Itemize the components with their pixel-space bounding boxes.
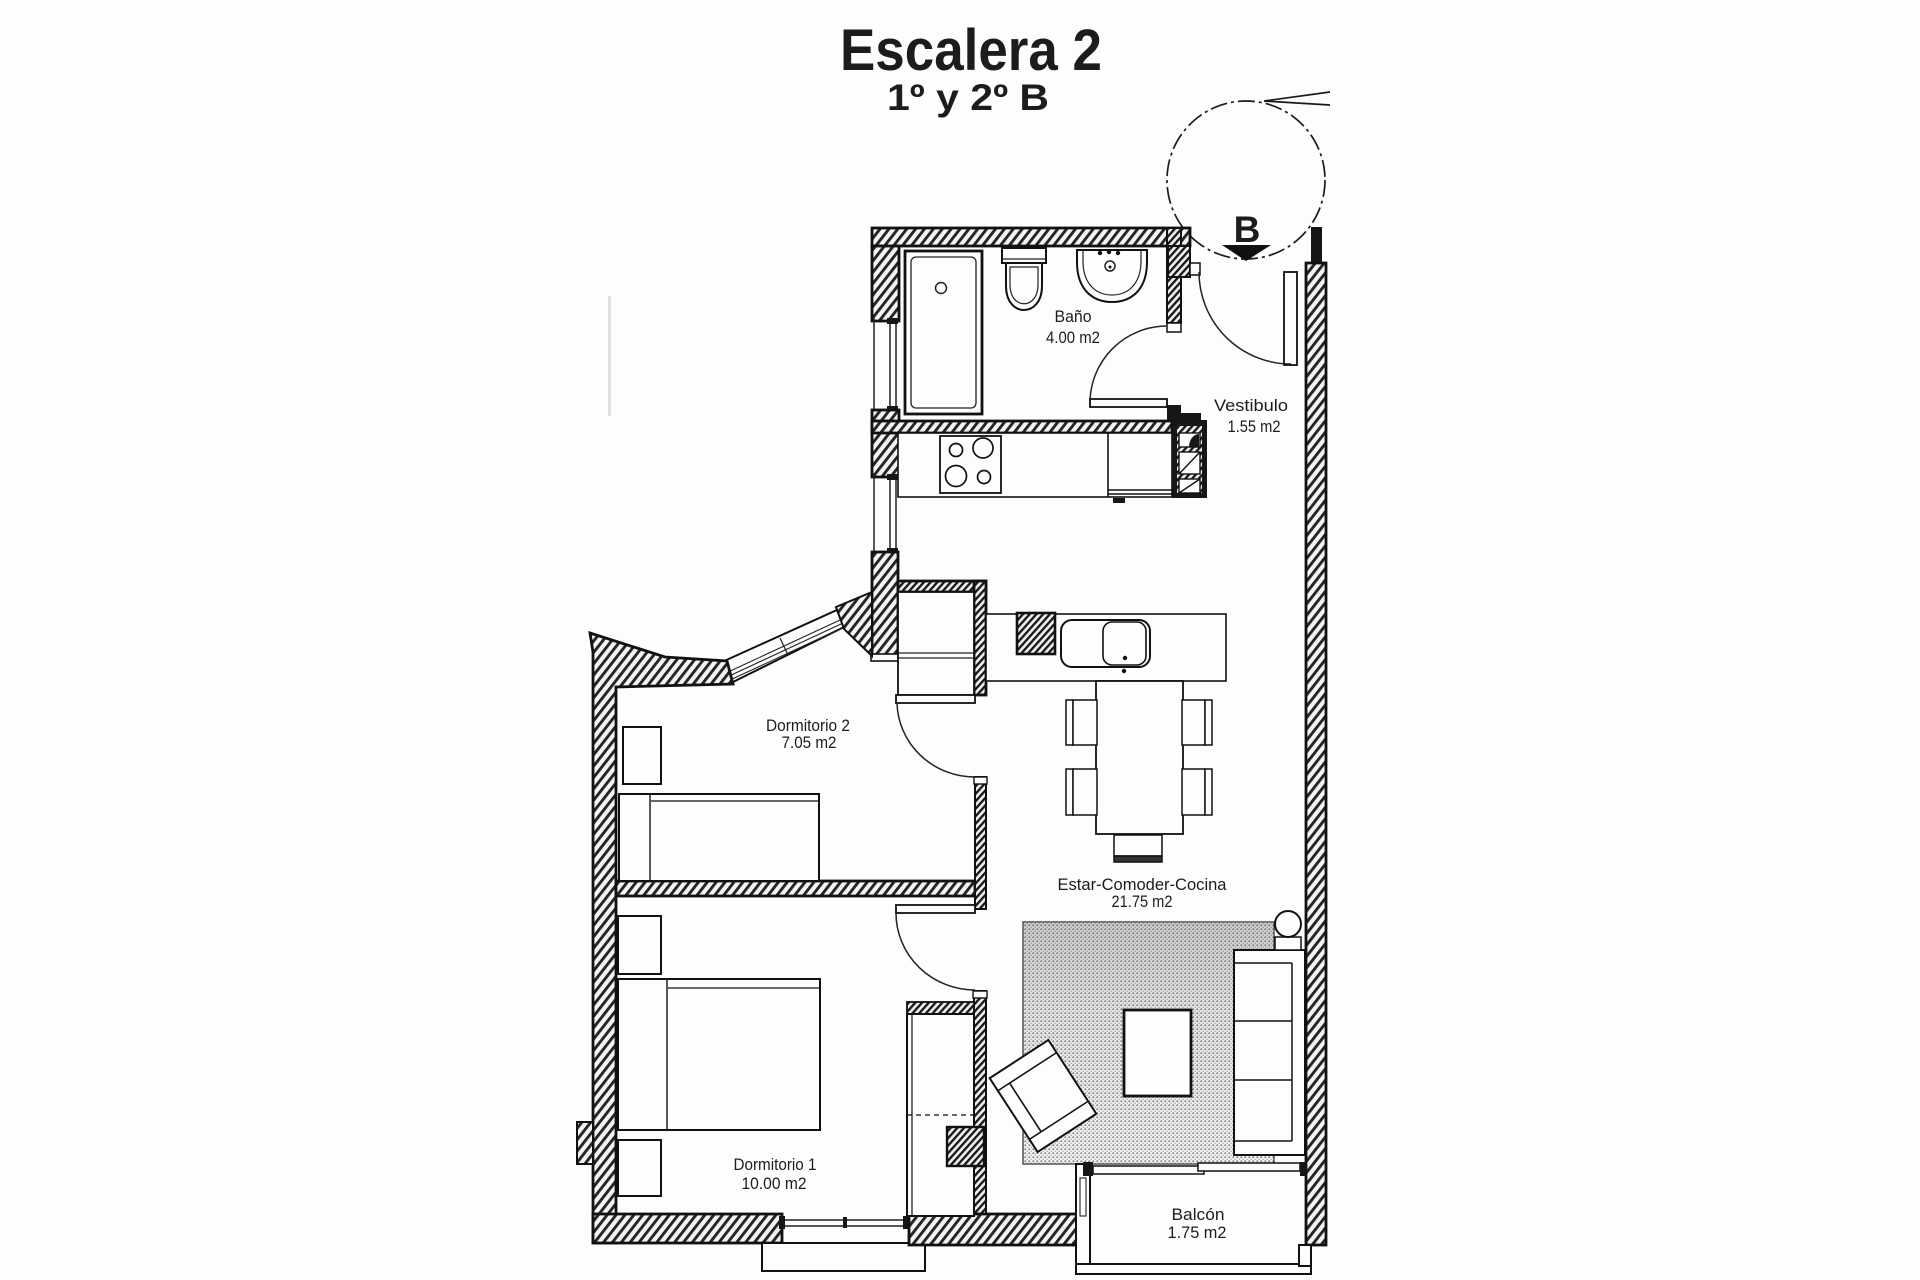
svg-text:Vestibulo: Vestibulo bbox=[1214, 396, 1288, 415]
svg-text:4.00 m2: 4.00 m2 bbox=[1046, 328, 1100, 347]
svg-text:Dormitorio 1: Dormitorio 1 bbox=[734, 1155, 817, 1174]
svg-text:21.75 m2: 21.75 m2 bbox=[1112, 892, 1173, 911]
svg-text:1º y 2º B: 1º y 2º B bbox=[887, 77, 1049, 118]
svg-text:10.00 m2: 10.00 m2 bbox=[742, 1174, 807, 1193]
svg-text:1.75 m2: 1.75 m2 bbox=[1168, 1223, 1227, 1242]
svg-text:Escalera 2: Escalera 2 bbox=[840, 18, 1102, 83]
svg-text:Baño: Baño bbox=[1055, 307, 1092, 326]
svg-text:B: B bbox=[1234, 209, 1261, 250]
svg-text:1.55 m2: 1.55 m2 bbox=[1228, 417, 1281, 436]
svg-text:Balcón: Balcón bbox=[1172, 1205, 1225, 1224]
svg-text:7.05 m2: 7.05 m2 bbox=[782, 733, 837, 752]
